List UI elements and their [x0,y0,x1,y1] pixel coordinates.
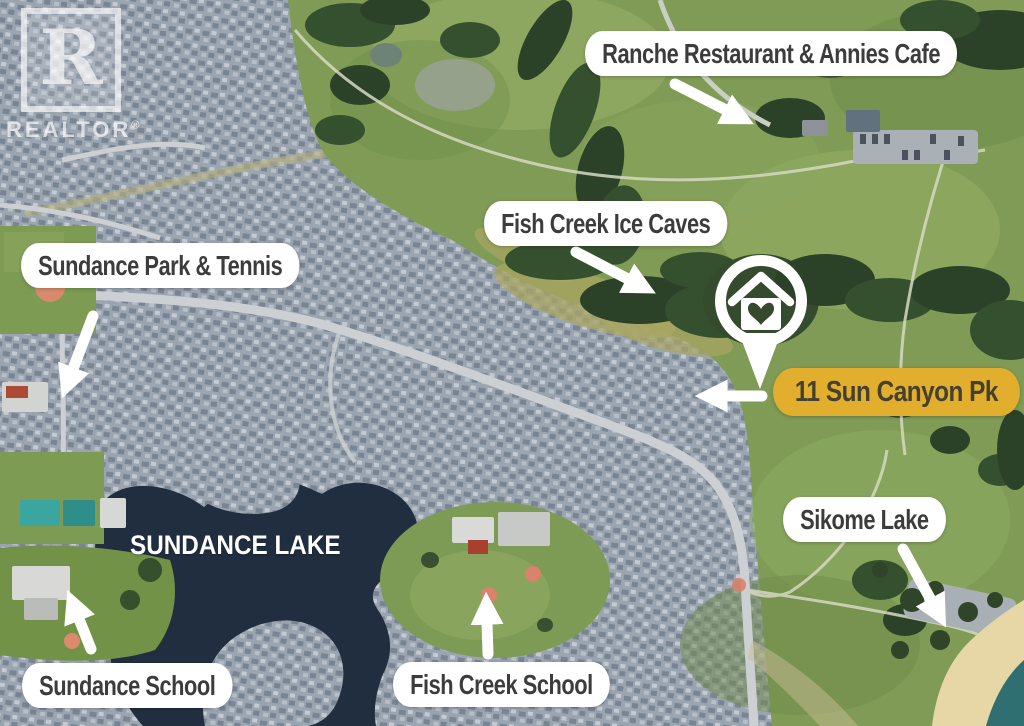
aerial-listing-map: Ranche Restaurant & Annies Cafe Fish Cre… [0,0,1024,726]
registered-trademark-symbol: ® [131,120,139,132]
satellite-map [0,0,1024,726]
sundance-school-site [0,546,175,661]
label-sundance-park-tennis: Sundance Park & Tennis [21,243,299,288]
label-fish-creek-ice-caves: Fish Creek Ice Caves [484,201,727,246]
realtor-logo-letter: R [39,20,102,96]
label-sikome-lake: Sikome Lake [783,497,946,542]
label-ranche-restaurant: Ranche Restaurant & Annies Cafe [585,31,957,76]
label-sundance-lake: SUNDANCE LAKE [130,530,341,561]
realtor-watermark: R REALTOR® [6,8,139,143]
label-subject-address: 11 Sun Canyon Pk [773,368,1020,416]
label-sundance-school: Sundance School [22,663,233,708]
label-fish-creek-school: Fish Creek School [393,662,610,707]
park-pond [370,43,402,67]
realtor-wordmark: REALTOR® [6,117,139,143]
realtor-logo: R [21,8,121,112]
